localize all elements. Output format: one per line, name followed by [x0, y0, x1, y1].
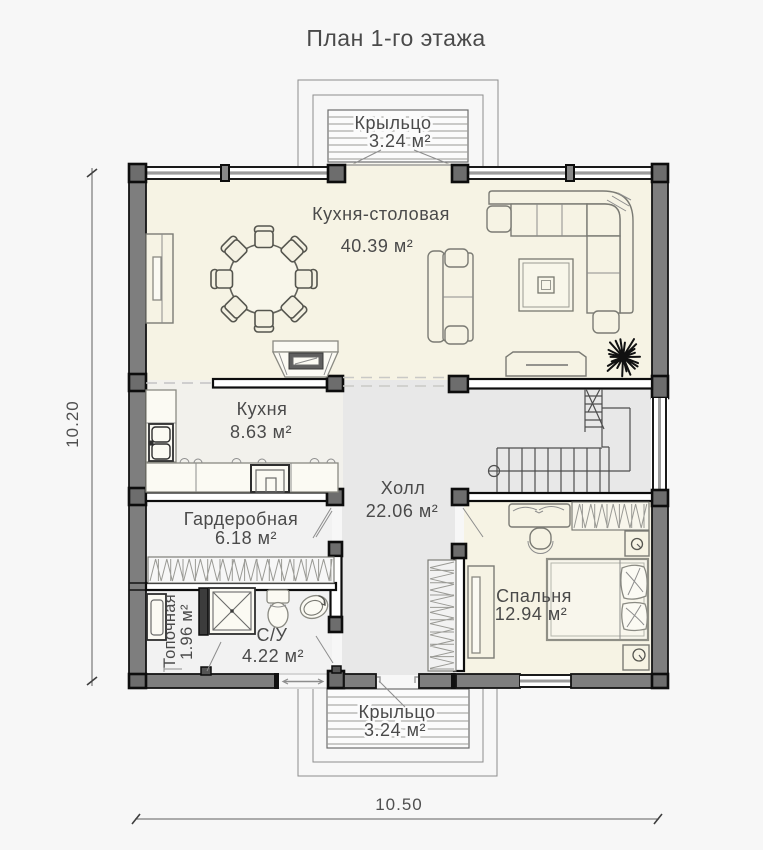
svg-text:Кухня: Кухня — [237, 399, 288, 419]
svg-text:Топочная: Топочная — [161, 594, 179, 668]
svg-text:3.24 м²: 3.24 м² — [364, 720, 426, 740]
svg-text:1.96 м²: 1.96 м² — [178, 604, 196, 660]
svg-text:План 1-го этажа: План 1-го этажа — [306, 25, 485, 51]
svg-text:Крыльцо: Крыльцо — [355, 113, 432, 133]
svg-text:8.63 м²: 8.63 м² — [230, 422, 292, 442]
svg-text:Холл: Холл — [381, 478, 425, 498]
svg-text:6.18 м²: 6.18 м² — [215, 528, 277, 548]
svg-text:10.50: 10.50 — [375, 795, 423, 814]
svg-text:4.22 м²: 4.22 м² — [242, 646, 304, 666]
svg-text:Крыльцо: Крыльцо — [359, 702, 436, 722]
svg-text:С/У: С/У — [257, 625, 288, 645]
svg-text:40.39 м²: 40.39 м² — [341, 236, 413, 256]
svg-text:10.20: 10.20 — [63, 400, 82, 448]
svg-text:Кухня-столовая: Кухня-столовая — [312, 204, 450, 224]
svg-text:3.24 м²: 3.24 м² — [369, 131, 431, 151]
svg-text:Гардеробная: Гардеробная — [184, 509, 298, 529]
svg-text:12.94 м²: 12.94 м² — [495, 604, 567, 624]
svg-text:22.06 м²: 22.06 м² — [366, 501, 438, 521]
svg-text:Спальня: Спальня — [496, 586, 572, 606]
